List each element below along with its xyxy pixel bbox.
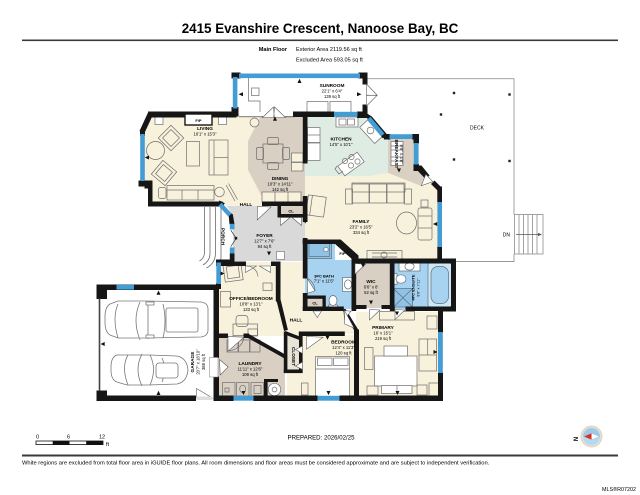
svg-text:Excluded Area 593.05 sq ft: Excluded Area 593.05 sq ft [296, 58, 363, 64]
svg-text:White regions are excluded fro: White regions are excluded from total fl… [22, 461, 490, 467]
svg-text:219 sq ft: 219 sq ft [375, 336, 392, 341]
svg-text:CLOSET: CLOSET [290, 347, 296, 366]
svg-text:7'1" x 11'5": 7'1" x 11'5" [314, 279, 335, 284]
svg-text:0: 0 [36, 435, 39, 441]
svg-text:Exterior Area 2119.56 sq ft: Exterior Area 2119.56 sq ft [296, 47, 362, 53]
svg-text:22'1" x 6'4": 22'1" x 6'4" [322, 89, 343, 94]
svg-text:6: 6 [67, 435, 70, 441]
svg-text:N: N [574, 437, 580, 441]
svg-text:109 sq ft: 109 sq ft [242, 372, 259, 377]
svg-text:DECK: DECK [470, 126, 485, 132]
svg-text:14'5" x 10'1": 14'5" x 10'1" [330, 142, 353, 147]
svg-text:16' x 15'1": 16' x 15'1" [373, 331, 393, 336]
svg-text:388 sq ft: 388 sq ft [201, 353, 206, 370]
svg-text:F/P: F/P [195, 118, 202, 123]
svg-text:133 sq ft: 133 sq ft [243, 307, 260, 312]
svg-text:6'6" x 8': 6'6" x 8' [364, 285, 379, 290]
svg-text:139 sq ft: 139 sq ft [324, 94, 341, 99]
svg-text:CL: CL [312, 301, 318, 306]
svg-text:334 sq ft: 334 sq ft [353, 230, 370, 235]
svg-text:10'3" x 14'11": 10'3" x 14'11" [268, 182, 293, 187]
svg-text:12'7" x 7'6": 12'7" x 7'6" [254, 239, 275, 244]
svg-text:16'1" x 15'3": 16'1" x 15'3" [194, 132, 217, 137]
svg-text:HALL: HALL [290, 318, 303, 324]
svg-text:9'6" x 7'11": 9'6" x 7'11" [417, 278, 421, 297]
svg-text:ft: ft [106, 442, 110, 448]
svg-text:10'8" x 13'1": 10'8" x 13'1" [240, 302, 263, 307]
svg-text:BREAKFAST: BREAKFAST [393, 139, 399, 168]
svg-text:CL: CL [288, 209, 294, 214]
svg-text:F/P: F/P [339, 251, 346, 256]
svg-text:94 sq ft: 94 sq ft [258, 244, 273, 249]
svg-text:Main Floor: Main Floor [259, 47, 288, 53]
svg-text:MLS®R07202: MLS®R07202 [602, 486, 636, 493]
svg-text:2415 Evanshire Crescent, Nanoo: 2415 Evanshire Crescent, Nanoose Bay, BC [182, 21, 459, 36]
svg-text:20'7" x 18'10": 20'7" x 18'10" [196, 349, 201, 375]
svg-text:11'11" x 12'6": 11'11" x 12'6" [238, 367, 263, 372]
svg-text:DN: DN [503, 233, 511, 239]
svg-text:PREPARED: 2026/02/25: PREPARED: 2026/02/25 [288, 435, 356, 442]
svg-text:12'4" x 11'3": 12'4" x 11'3" [332, 345, 355, 350]
svg-text:120 sq ft: 120 sq ft [335, 351, 352, 356]
svg-text:4PC ENSUITE: 4PC ENSUITE [411, 274, 416, 301]
svg-text:HALL: HALL [240, 202, 253, 208]
svg-text:12: 12 [99, 435, 105, 441]
svg-text:9'9" X 4'8": 9'9" X 4'8" [399, 144, 404, 164]
svg-text:52 sq ft: 52 sq ft [364, 290, 379, 295]
svg-text:142 sq ft: 142 sq ft [272, 187, 289, 192]
svg-text:PORCH: PORCH [220, 228, 226, 246]
svg-text:23'2" x 16'5": 23'2" x 16'5" [350, 225, 373, 230]
